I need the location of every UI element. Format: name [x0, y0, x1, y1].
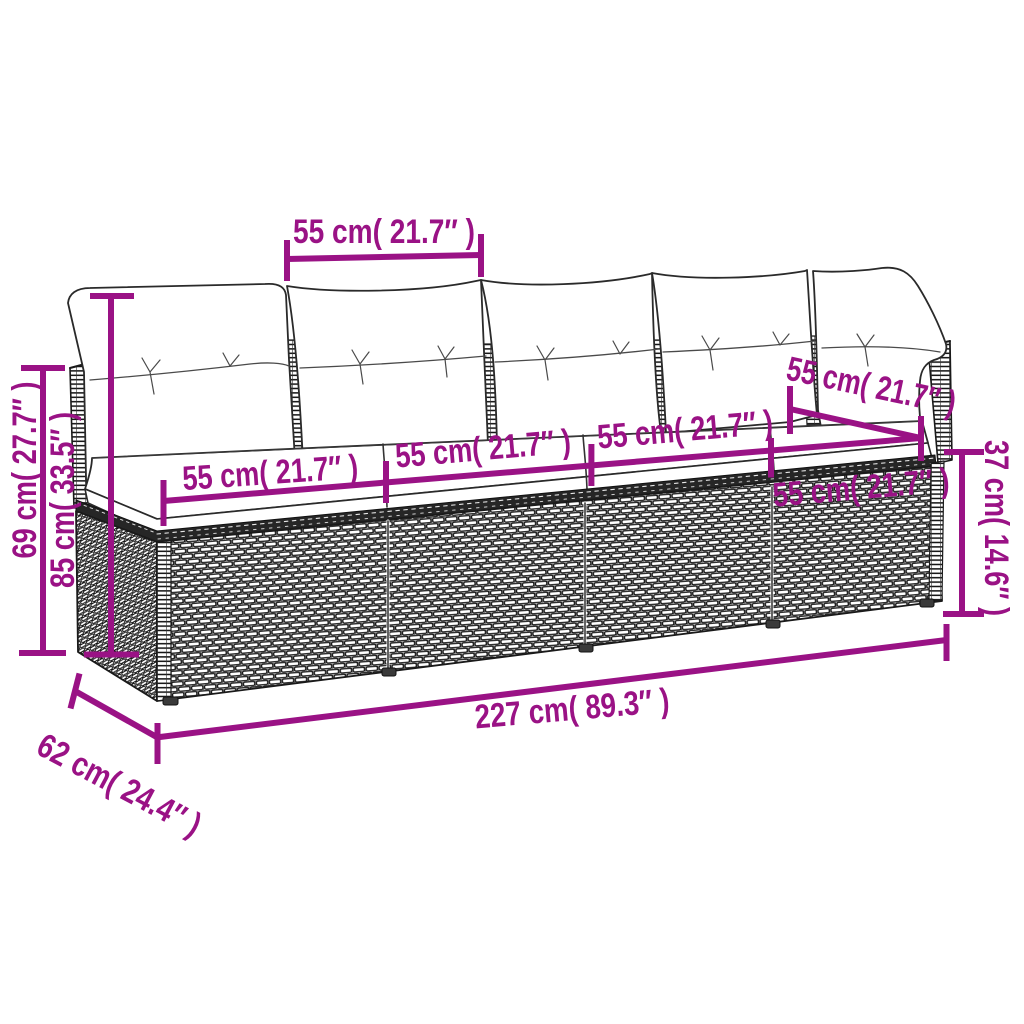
svg-text:37 cm( 14.6″ ): 37 cm( 14.6″ ) [977, 440, 1015, 616]
svg-text:69 cm( 27.7″ ): 69 cm( 27.7″ ) [6, 382, 44, 559]
svg-text:85 cm( 33.5″ ): 85 cm( 33.5″ ) [44, 412, 82, 588]
svg-text:55 cm( 21.7″ ): 55 cm( 21.7″ ) [293, 213, 475, 251]
